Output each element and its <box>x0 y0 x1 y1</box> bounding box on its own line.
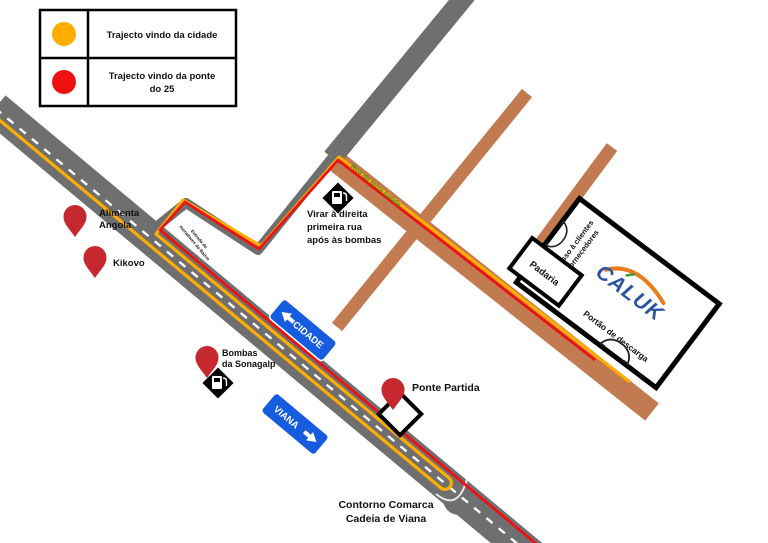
legend-red-dot <box>52 70 76 94</box>
map-canvas: Acesso à clientes e fornecedores Padaria… <box>0 0 768 543</box>
contorno-label-line2: Cadeia de Viana <box>346 513 427 525</box>
north-road <box>332 0 470 158</box>
bombas-label-line1: Bombas <box>222 348 258 358</box>
route-map-svg: Acesso à clientes e fornecedores Padaria… <box>0 0 768 543</box>
legend-item1-label: Trajecto vindo da cidade <box>107 30 218 41</box>
pin-alimenta-angola <box>64 205 87 237</box>
viana-sign: VIANA <box>260 392 330 456</box>
instruction-line1: Virar à direita <box>307 209 368 220</box>
instruction-line2: primeira rua <box>307 222 363 233</box>
bombas-label-line2: da Sonagalp <box>222 359 276 369</box>
legend-item2-label-line2: do 25 <box>150 84 176 95</box>
kikovo-label: Kikovo <box>113 258 145 269</box>
contorno-label-line1: Contorno Comarca <box>338 499 433 511</box>
alimenta-label-line1: Alimenta <box>99 208 140 219</box>
instruction-line3: após às bombas <box>307 235 381 246</box>
legend-item2-label-line1: Trajecto vindo da ponte <box>109 71 216 82</box>
legend: Trajecto vindo da cidade Trajecto vindo … <box>40 10 236 106</box>
ponte-partida-label: Ponte Partida <box>412 382 480 394</box>
legend-yellow-dot <box>52 22 76 46</box>
pin-kikovo <box>84 246 107 278</box>
alimenta-label-line2: Angola <box>99 220 132 231</box>
caluk-building: Acesso à clientes e fornecedores Padaria… <box>505 190 719 388</box>
